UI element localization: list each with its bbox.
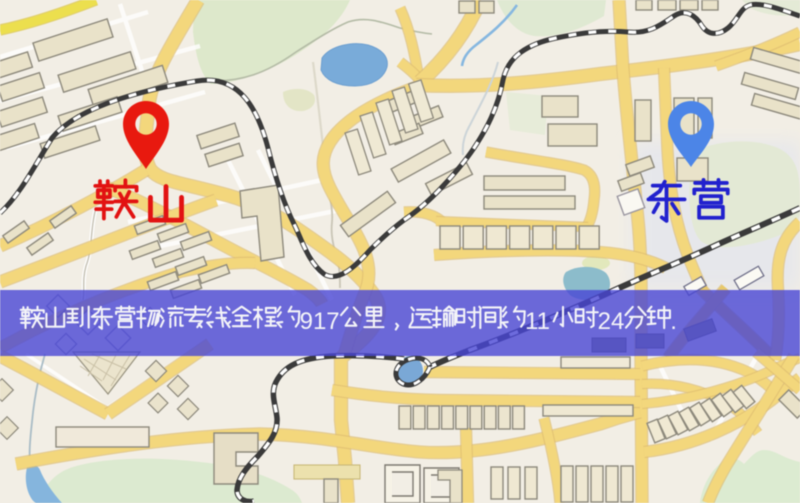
svg-text:24: 24 [598, 308, 625, 335]
svg-text:.: . [670, 308, 677, 335]
svg-text:11: 11 [525, 308, 550, 335]
svg-text:917: 917 [300, 308, 340, 335]
